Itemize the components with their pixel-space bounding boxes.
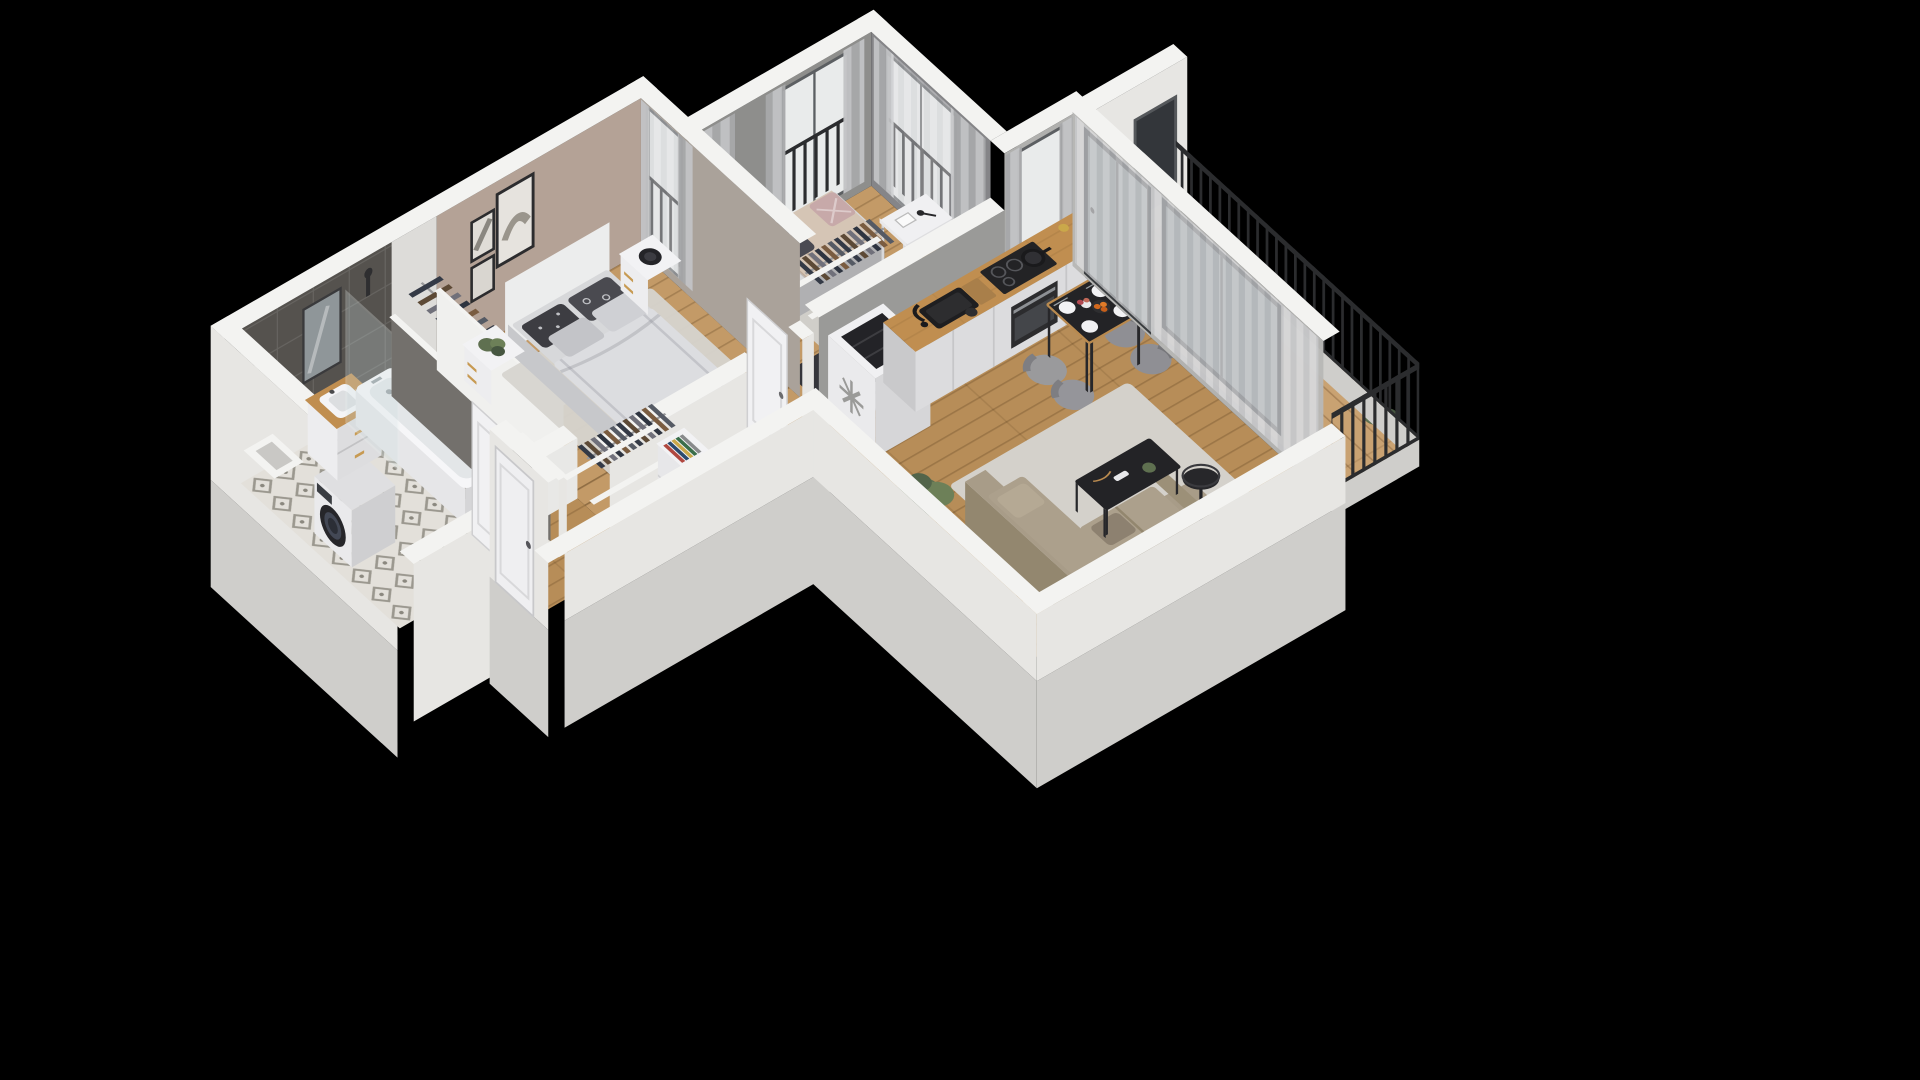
entry-wall <box>490 429 549 737</box>
apartment <box>211 10 1420 874</box>
floor-plan-render <box>0 0 1920 1080</box>
curtain <box>641 100 650 253</box>
floor-plan-stage <box>0 0 1920 1080</box>
